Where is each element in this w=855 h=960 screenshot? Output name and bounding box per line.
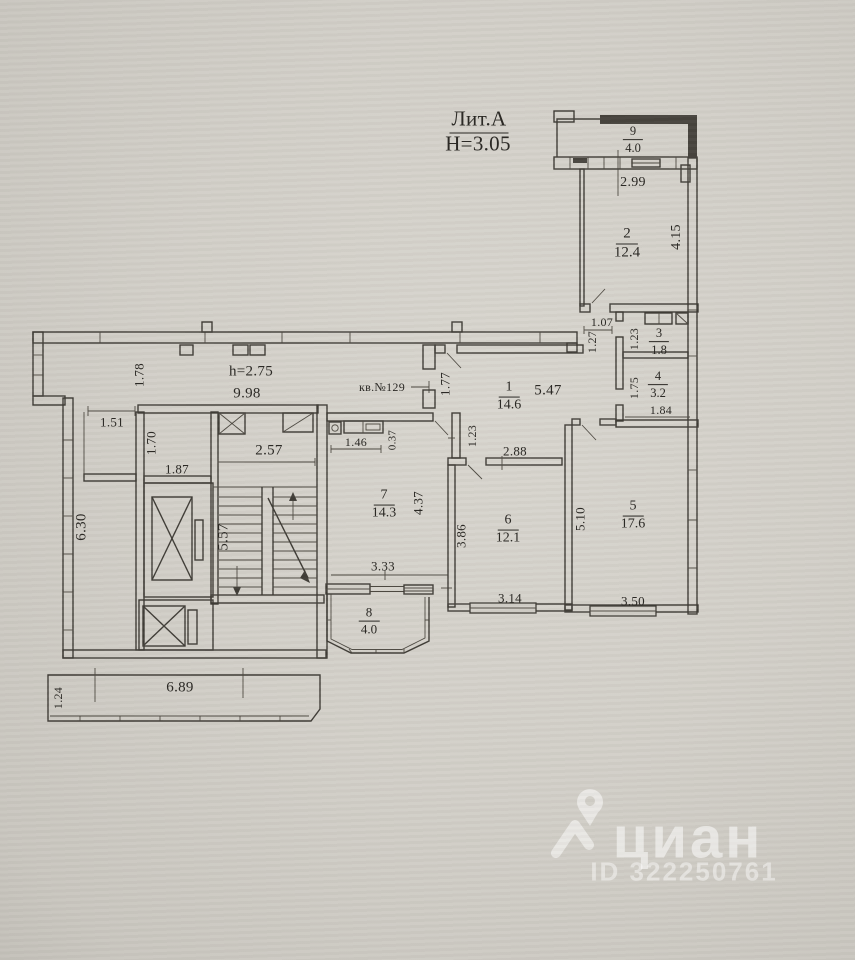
room-number: 3 bbox=[649, 327, 669, 342]
dim-4-15: 4.15 bbox=[670, 224, 684, 250]
room-area: 4.0 bbox=[623, 140, 643, 155]
room-number: 2 bbox=[616, 227, 638, 245]
corridor-ceiling-label: h=2.75 bbox=[229, 365, 273, 380]
watermark-listing-id: ID 322250761 bbox=[590, 857, 777, 888]
dim-2-88: 2.88 bbox=[503, 445, 527, 458]
room-label-4: 4 3.2 bbox=[648, 370, 668, 400]
room-label-7: 7 14.3 bbox=[372, 489, 397, 522]
height-mark-label: Н=3.05 bbox=[445, 134, 511, 155]
dim-3-33: 3.33 bbox=[371, 560, 395, 573]
cian-pin-icon bbox=[556, 789, 603, 853]
room-label-5: 5 17.6 bbox=[621, 500, 646, 533]
dim-5-10: 5.10 bbox=[574, 507, 587, 531]
dim-1-51: 1.51 bbox=[100, 416, 124, 429]
dim-3-50: 3.50 bbox=[621, 595, 645, 608]
room-number: 1 bbox=[499, 381, 520, 398]
room-number: 7 bbox=[374, 489, 395, 506]
dim-1-87: 1.87 bbox=[165, 463, 189, 476]
room-area: 14.3 bbox=[372, 505, 397, 521]
dim-1-84: 1.84 bbox=[650, 404, 672, 416]
dim-6-30: 6.30 bbox=[75, 513, 90, 540]
room-number: 4 bbox=[648, 370, 668, 385]
dim-1-46: 1.46 bbox=[345, 436, 367, 448]
dim-1-23-room3: 1.23 bbox=[628, 328, 640, 350]
dim-1-07: 1.07 bbox=[591, 316, 613, 328]
room-label-6: 6 12.1 bbox=[496, 514, 521, 547]
room-label-2: 2 12.4 bbox=[614, 227, 640, 262]
dim-1-77: 1.77 bbox=[439, 372, 452, 396]
corridor-walls bbox=[33, 322, 577, 405]
dim-5-47: 5.47 bbox=[534, 384, 561, 399]
corridor-length-label: 9.98 bbox=[233, 387, 260, 402]
dim-1-75: 1.75 bbox=[628, 377, 640, 399]
dim-2-57: 2.57 bbox=[255, 444, 282, 459]
room-area: 17.6 bbox=[621, 516, 646, 532]
litera-label: Лит.А bbox=[450, 107, 509, 134]
room-area: 4.0 bbox=[359, 621, 380, 636]
room-number: 8 bbox=[359, 606, 380, 622]
room-number: 5 bbox=[623, 500, 644, 517]
room-area: 3.2 bbox=[648, 385, 668, 400]
dim-2-99: 2.99 bbox=[620, 176, 646, 190]
room-area: 12.1 bbox=[496, 530, 521, 546]
dim-0-37: 0.37 bbox=[388, 430, 399, 450]
room-area: 14.6 bbox=[497, 397, 522, 413]
room-area: 1.8 bbox=[649, 342, 669, 357]
room-label-8: 8 4.0 bbox=[359, 606, 380, 637]
dim-1-70: 1.70 bbox=[145, 431, 158, 455]
dim-1-23-room6: 1.23 bbox=[466, 425, 478, 447]
room-number: 6 bbox=[498, 514, 519, 531]
elevator-shafts bbox=[139, 483, 213, 650]
dim-3-86: 3.86 bbox=[455, 524, 468, 548]
dim-5-57: 5.57 bbox=[217, 523, 232, 550]
dim-1-27: 1.27 bbox=[586, 331, 598, 353]
floor-plan-photo: Лит.А Н=3.05 9 4.0 2 12.4 3 1.8 4 3.2 1 … bbox=[0, 0, 855, 960]
dim-1-78: 1.78 bbox=[133, 363, 146, 387]
dim-3-14: 3.14 bbox=[498, 592, 522, 605]
room-area: 12.4 bbox=[614, 244, 640, 261]
dim-4-37: 4.37 bbox=[412, 491, 425, 515]
dim-1-24: 1.24 bbox=[52, 687, 64, 709]
apartment-number-label: кв.№129 bbox=[359, 381, 405, 393]
room-label-3: 3 1.8 bbox=[649, 327, 669, 357]
room-label-9: 9 4.0 bbox=[623, 125, 643, 155]
room-number: 9 bbox=[623, 125, 643, 140]
rooms-3-4-walls bbox=[584, 312, 698, 427]
plan-title: Лит.А bbox=[450, 109, 509, 130]
dim-6-89: 6.89 bbox=[166, 681, 193, 696]
room-label-1: 1 14.6 bbox=[497, 381, 522, 414]
